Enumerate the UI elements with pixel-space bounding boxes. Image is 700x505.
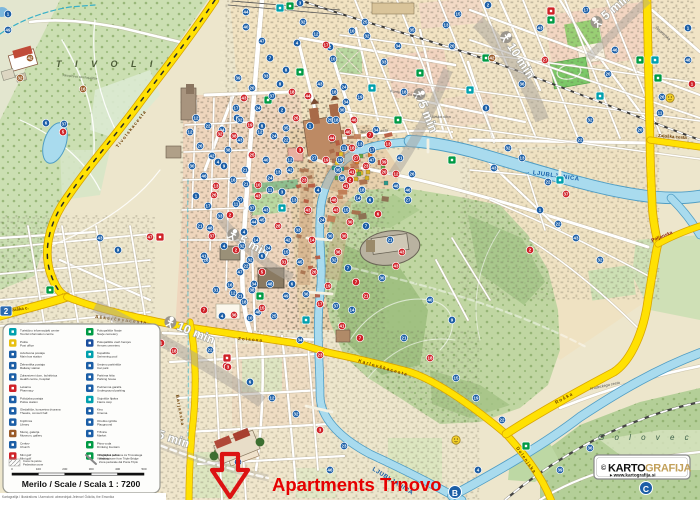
svg-text:B: B — [452, 488, 458, 498]
svg-text:12: 12 — [194, 116, 199, 121]
svg-text:15: 15 — [456, 12, 461, 17]
svg-text:46: 46 — [202, 174, 207, 179]
svg-text:32: 32 — [332, 258, 337, 263]
svg-text:Parking house: Parking house — [97, 377, 117, 381]
svg-text:Main bus station: Main bus station — [20, 355, 42, 359]
svg-text:100: 100 — [36, 467, 41, 471]
svg-text:24: 24 — [342, 85, 347, 90]
svg-text:13: 13 — [444, 23, 449, 28]
svg-text:19: 19 — [248, 123, 253, 128]
svg-text:37: 37 — [334, 304, 339, 309]
svg-text:22: 22 — [244, 264, 249, 269]
svg-text:42: 42 — [286, 238, 291, 243]
svg-text:47: 47 — [148, 235, 153, 240]
svg-text:26: 26 — [198, 144, 203, 149]
svg-text:41: 41 — [350, 170, 355, 175]
svg-text:25: 25 — [363, 20, 368, 25]
svg-text:33: 33 — [296, 228, 301, 233]
svg-text:43: 43 — [306, 208, 311, 213]
svg-text:32: 32 — [294, 412, 299, 417]
svg-text:32: 32 — [506, 146, 511, 151]
svg-text:49: 49 — [284, 294, 289, 299]
svg-text:10: 10 — [331, 57, 336, 62]
svg-text:Kartografija / Illustrations /: Kartografija / Illustrations / Azenzioni… — [2, 494, 114, 499]
svg-text:21: 21 — [364, 294, 369, 299]
svg-text:47: 47 — [370, 158, 375, 163]
svg-text:Apartments Trnovo: Apartments Trnovo — [272, 474, 442, 495]
svg-text:37: 37 — [210, 234, 215, 239]
svg-text:18: 18 — [428, 356, 433, 361]
svg-text:45: 45 — [260, 218, 265, 223]
svg-text:24: 24 — [268, 176, 273, 181]
svg-text:38: 38 — [340, 176, 345, 181]
svg-text:14: 14 — [254, 238, 259, 243]
svg-text:20: 20 — [450, 44, 455, 49]
svg-text:34: 34 — [298, 338, 303, 343]
svg-text:24: 24 — [272, 134, 277, 139]
svg-text:22: 22 — [578, 138, 583, 143]
svg-text:45: 45 — [298, 260, 303, 265]
svg-text:18: 18 — [402, 90, 407, 95]
svg-text:10: 10 — [248, 316, 253, 321]
svg-text:23: 23 — [302, 178, 307, 183]
svg-text:200: 200 — [62, 467, 67, 471]
svg-text:41: 41 — [340, 324, 345, 329]
svg-text:32: 32 — [218, 132, 223, 137]
svg-text:39: 39 — [382, 160, 387, 165]
svg-text:11: 11 — [658, 111, 663, 116]
svg-text:22: 22 — [206, 124, 211, 129]
svg-text:Cinema: Cinema — [97, 411, 108, 415]
svg-text:43: 43 — [538, 26, 543, 31]
svg-text:47: 47 — [238, 270, 243, 275]
svg-text:16: 16 — [81, 87, 86, 92]
svg-text:17: 17 — [370, 148, 375, 153]
svg-text:Pedestrian zone: Pedestrian zone — [23, 463, 44, 467]
svg-text:Merilo / Scale / Scala 1 : 720: Merilo / Scale / Scala 1 : 7200 — [22, 479, 141, 489]
svg-text:Navje cemetery: Navje cemetery — [97, 332, 118, 336]
svg-text:12: 12 — [394, 172, 399, 177]
svg-text:300: 300 — [89, 467, 94, 471]
svg-text:13: 13 — [520, 156, 525, 161]
svg-text:20: 20 — [606, 72, 611, 77]
svg-text:33: 33 — [264, 74, 269, 79]
svg-text:17: 17 — [206, 204, 211, 209]
svg-text:34: 34 — [344, 100, 349, 105]
svg-text:43: 43 — [574, 236, 579, 241]
svg-text:Library: Library — [20, 422, 30, 426]
svg-text:43: 43 — [264, 208, 269, 213]
svg-text:Ilirska ulica: Ilirska ulica — [432, 115, 451, 119]
svg-text:36: 36 — [304, 292, 309, 297]
svg-text:18: 18 — [360, 188, 365, 193]
svg-text:44: 44 — [244, 10, 249, 15]
svg-text:34: 34 — [374, 128, 379, 133]
svg-text:▸ www.kartografija.si: ▸ www.kartografija.si — [609, 473, 656, 478]
svg-text:32: 32 — [238, 118, 243, 123]
svg-text:35: 35 — [284, 126, 289, 131]
svg-text:©: © — [601, 464, 607, 472]
svg-text:12: 12 — [258, 130, 263, 135]
svg-text:48: 48 — [208, 226, 213, 231]
svg-text:38: 38 — [250, 288, 255, 293]
svg-text:23: 23 — [342, 444, 347, 449]
svg-text:20: 20 — [382, 170, 387, 175]
svg-text:12: 12 — [231, 291, 236, 296]
svg-text:33: 33 — [218, 214, 223, 219]
svg-text:12: 12 — [314, 32, 319, 37]
svg-text:18: 18 — [332, 90, 337, 95]
svg-text:13: 13 — [292, 198, 297, 203]
svg-text:Police station: Police station — [20, 400, 38, 404]
svg-text:19: 19 — [358, 95, 363, 100]
svg-text:Zona pedonale dal Ponte Triplo: Zona pedonale dal Ponte Triplo — [99, 460, 138, 464]
svg-text:38: 38 — [226, 148, 231, 153]
svg-text:18: 18 — [290, 90, 295, 95]
svg-text:20: 20 — [638, 128, 643, 133]
svg-text:13: 13 — [276, 170, 281, 175]
svg-text:18: 18 — [172, 349, 177, 354]
svg-text:27: 27 — [312, 156, 317, 161]
svg-text:13: 13 — [358, 142, 363, 147]
svg-text:17: 17 — [584, 8, 589, 13]
svg-text:14: 14 — [356, 196, 361, 201]
svg-text:30: 30 — [348, 220, 353, 225]
svg-text:16: 16 — [231, 178, 236, 183]
svg-text:27: 27 — [354, 156, 359, 161]
svg-text:Car park: Car park — [97, 366, 109, 370]
svg-text:36: 36 — [336, 250, 341, 255]
svg-text:15: 15 — [344, 208, 349, 213]
svg-text:T I V O L I: T I V O L I — [56, 59, 158, 69]
svg-text:43: 43 — [238, 138, 243, 143]
svg-text:22: 22 — [500, 418, 505, 423]
svg-text:21: 21 — [198, 224, 203, 229]
svg-text:46: 46 — [328, 468, 333, 473]
svg-text:400: 400 — [115, 467, 120, 471]
svg-text:48: 48 — [268, 282, 273, 287]
svg-text:46: 46 — [352, 118, 357, 123]
svg-text:48: 48 — [394, 184, 399, 189]
svg-text:37: 37 — [62, 122, 67, 127]
svg-text:Health centre, hospital: Health centre, hospital — [20, 377, 50, 381]
svg-text:17: 17 — [234, 106, 239, 111]
svg-text:Underground parking: Underground parking — [97, 389, 126, 393]
svg-text:22: 22 — [546, 180, 551, 185]
svg-text:30: 30 — [340, 108, 345, 113]
svg-text:12: 12 — [270, 396, 275, 401]
svg-text:36: 36 — [520, 82, 525, 87]
svg-text:44: 44 — [306, 94, 311, 99]
svg-text:25: 25 — [250, 153, 255, 158]
svg-text:10: 10 — [256, 183, 261, 188]
svg-text:Swimming pool: Swimming pool — [97, 355, 118, 359]
svg-text:12: 12 — [188, 130, 193, 135]
svg-text:23: 23 — [364, 164, 369, 169]
svg-text:Drinking fountain: Drinking fountain — [97, 445, 120, 449]
svg-text:39: 39 — [236, 76, 241, 81]
svg-text:23: 23 — [318, 353, 323, 358]
svg-text:15: 15 — [284, 250, 289, 255]
svg-text:43: 43 — [318, 82, 323, 87]
svg-text:27: 27 — [406, 198, 411, 203]
svg-text:Theatre, concert hall: Theatre, concert hall — [20, 411, 48, 415]
svg-text:43: 43 — [492, 166, 497, 171]
svg-text:49: 49 — [6, 28, 11, 33]
svg-text:26: 26 — [212, 193, 217, 198]
svg-text:46: 46 — [613, 48, 618, 53]
svg-text:40: 40 — [346, 130, 351, 135]
svg-text:18: 18 — [242, 300, 247, 305]
svg-text:43: 43 — [400, 250, 405, 255]
svg-text:Market: Market — [97, 434, 106, 438]
svg-text:39: 39 — [558, 468, 563, 473]
svg-text:10: 10 — [350, 29, 355, 34]
svg-text:44: 44 — [330, 136, 335, 141]
svg-text:32: 32 — [18, 76, 23, 81]
svg-text:32: 32 — [248, 258, 253, 263]
svg-text:Post office: Post office — [20, 343, 34, 347]
svg-text:21: 21 — [388, 238, 393, 243]
svg-text:500: 500 — [141, 467, 146, 471]
svg-text:15: 15 — [454, 376, 459, 381]
svg-text:13: 13 — [386, 142, 391, 147]
svg-text:G o l o v e c: G o l o v e c — [598, 433, 693, 442]
svg-text:41: 41 — [344, 184, 349, 189]
svg-text:34: 34 — [252, 282, 257, 287]
svg-text:19: 19 — [338, 158, 343, 163]
svg-text:Playground: Playground — [97, 422, 113, 426]
svg-text:C: C — [643, 484, 649, 494]
svg-text:Heroes cemetery: Heroes cemetery — [97, 343, 120, 347]
svg-text:43: 43 — [334, 208, 339, 213]
svg-text:26: 26 — [294, 116, 299, 121]
svg-text:14: 14 — [350, 308, 355, 313]
svg-text:Church: Church — [20, 445, 30, 449]
svg-text:41: 41 — [398, 156, 403, 161]
svg-text:18: 18 — [350, 146, 355, 151]
svg-text:19: 19 — [324, 158, 329, 163]
svg-text:24: 24 — [266, 246, 271, 251]
svg-text:48: 48 — [332, 198, 337, 203]
svg-text:27: 27 — [543, 58, 548, 63]
svg-text:37: 37 — [250, 206, 255, 211]
svg-text:40: 40 — [264, 158, 269, 163]
svg-text:20: 20 — [250, 86, 255, 91]
svg-text:22: 22 — [208, 348, 213, 353]
svg-text:14: 14 — [310, 238, 315, 243]
svg-text:43: 43 — [98, 236, 103, 241]
svg-text:40: 40 — [244, 25, 249, 30]
svg-text:26: 26 — [660, 95, 665, 100]
svg-text:11: 11 — [342, 146, 347, 151]
svg-text:22: 22 — [284, 138, 289, 143]
svg-text:33: 33 — [382, 60, 387, 65]
svg-text:46: 46 — [406, 188, 411, 193]
svg-text:36: 36 — [588, 446, 593, 451]
svg-text:17: 17 — [324, 43, 329, 48]
svg-text:42: 42 — [490, 56, 495, 61]
svg-text:24: 24 — [256, 106, 261, 111]
svg-text:32: 32 — [598, 258, 603, 263]
svg-text:35: 35 — [410, 28, 415, 33]
svg-text:16: 16 — [228, 283, 233, 288]
svg-text:40: 40 — [428, 298, 433, 303]
svg-text:11: 11 — [234, 202, 239, 207]
svg-text:21: 21 — [244, 182, 249, 187]
svg-text:37: 37 — [270, 94, 275, 99]
svg-text:11: 11 — [268, 188, 273, 193]
svg-text:Tourist information centre: Tourist information centre — [20, 332, 54, 336]
svg-text:21: 21 — [238, 294, 243, 299]
svg-text:24: 24 — [320, 218, 325, 223]
svg-text:43: 43 — [394, 264, 399, 269]
svg-text:41: 41 — [202, 254, 207, 259]
svg-text:35: 35 — [336, 168, 341, 173]
svg-text:44: 44 — [252, 220, 257, 225]
svg-text:30: 30 — [342, 234, 347, 239]
svg-text:30: 30 — [380, 276, 385, 281]
svg-text:31: 31 — [214, 288, 219, 293]
svg-text:42: 42 — [288, 168, 293, 173]
svg-text:2: 2 — [4, 307, 9, 316]
svg-text:12: 12 — [288, 158, 293, 163]
svg-text:25: 25 — [272, 314, 277, 319]
svg-text:48: 48 — [686, 58, 691, 63]
svg-text:31: 31 — [282, 260, 287, 265]
svg-text:19: 19 — [474, 396, 479, 401]
svg-text:32: 32 — [588, 118, 593, 123]
svg-text:21: 21 — [243, 168, 248, 173]
svg-text:Fiacre stop: Fiacre stop — [97, 400, 112, 404]
svg-text:17: 17 — [318, 302, 323, 307]
svg-text:13: 13 — [214, 184, 219, 189]
svg-text:43: 43 — [256, 194, 261, 199]
svg-text:28: 28 — [276, 224, 281, 229]
svg-text:42: 42 — [28, 56, 33, 61]
svg-text:37: 37 — [564, 192, 569, 197]
svg-text:30: 30 — [190, 164, 195, 169]
svg-text:22: 22 — [556, 222, 561, 227]
svg-text:43: 43 — [242, 96, 247, 101]
svg-text:34: 34 — [396, 44, 401, 49]
svg-text:Museum, gallery: Museum, gallery — [20, 434, 43, 438]
svg-text:36: 36 — [232, 313, 237, 318]
svg-text:19: 19 — [326, 284, 331, 289]
svg-text:26: 26 — [312, 270, 317, 275]
svg-text:47: 47 — [260, 39, 265, 44]
svg-text:32: 32 — [301, 20, 306, 25]
svg-text:18: 18 — [334, 118, 339, 123]
svg-text:32: 32 — [365, 34, 370, 39]
svg-text:38: 38 — [232, 134, 237, 139]
svg-text:30: 30 — [328, 234, 333, 239]
svg-text:Pharmacy: Pharmacy — [20, 389, 34, 393]
svg-text:42: 42 — [210, 154, 215, 159]
svg-text:15: 15 — [260, 306, 265, 311]
svg-text:32: 32 — [240, 244, 245, 249]
svg-text:21: 21 — [402, 336, 407, 341]
svg-text:26: 26 — [410, 172, 415, 177]
svg-text:Railway station: Railway station — [20, 366, 41, 370]
